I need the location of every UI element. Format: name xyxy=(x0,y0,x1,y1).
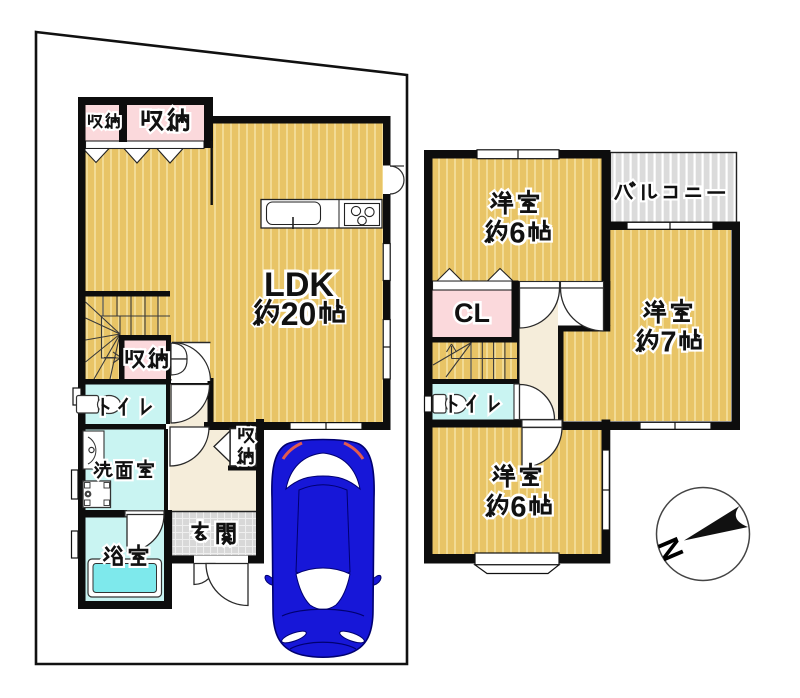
svg-text:20: 20 xyxy=(281,296,317,332)
svg-text:CL: CL xyxy=(454,298,490,328)
svg-text:6: 6 xyxy=(510,492,526,524)
svg-text:6: 6 xyxy=(509,218,525,250)
svg-text:7: 7 xyxy=(660,327,676,359)
